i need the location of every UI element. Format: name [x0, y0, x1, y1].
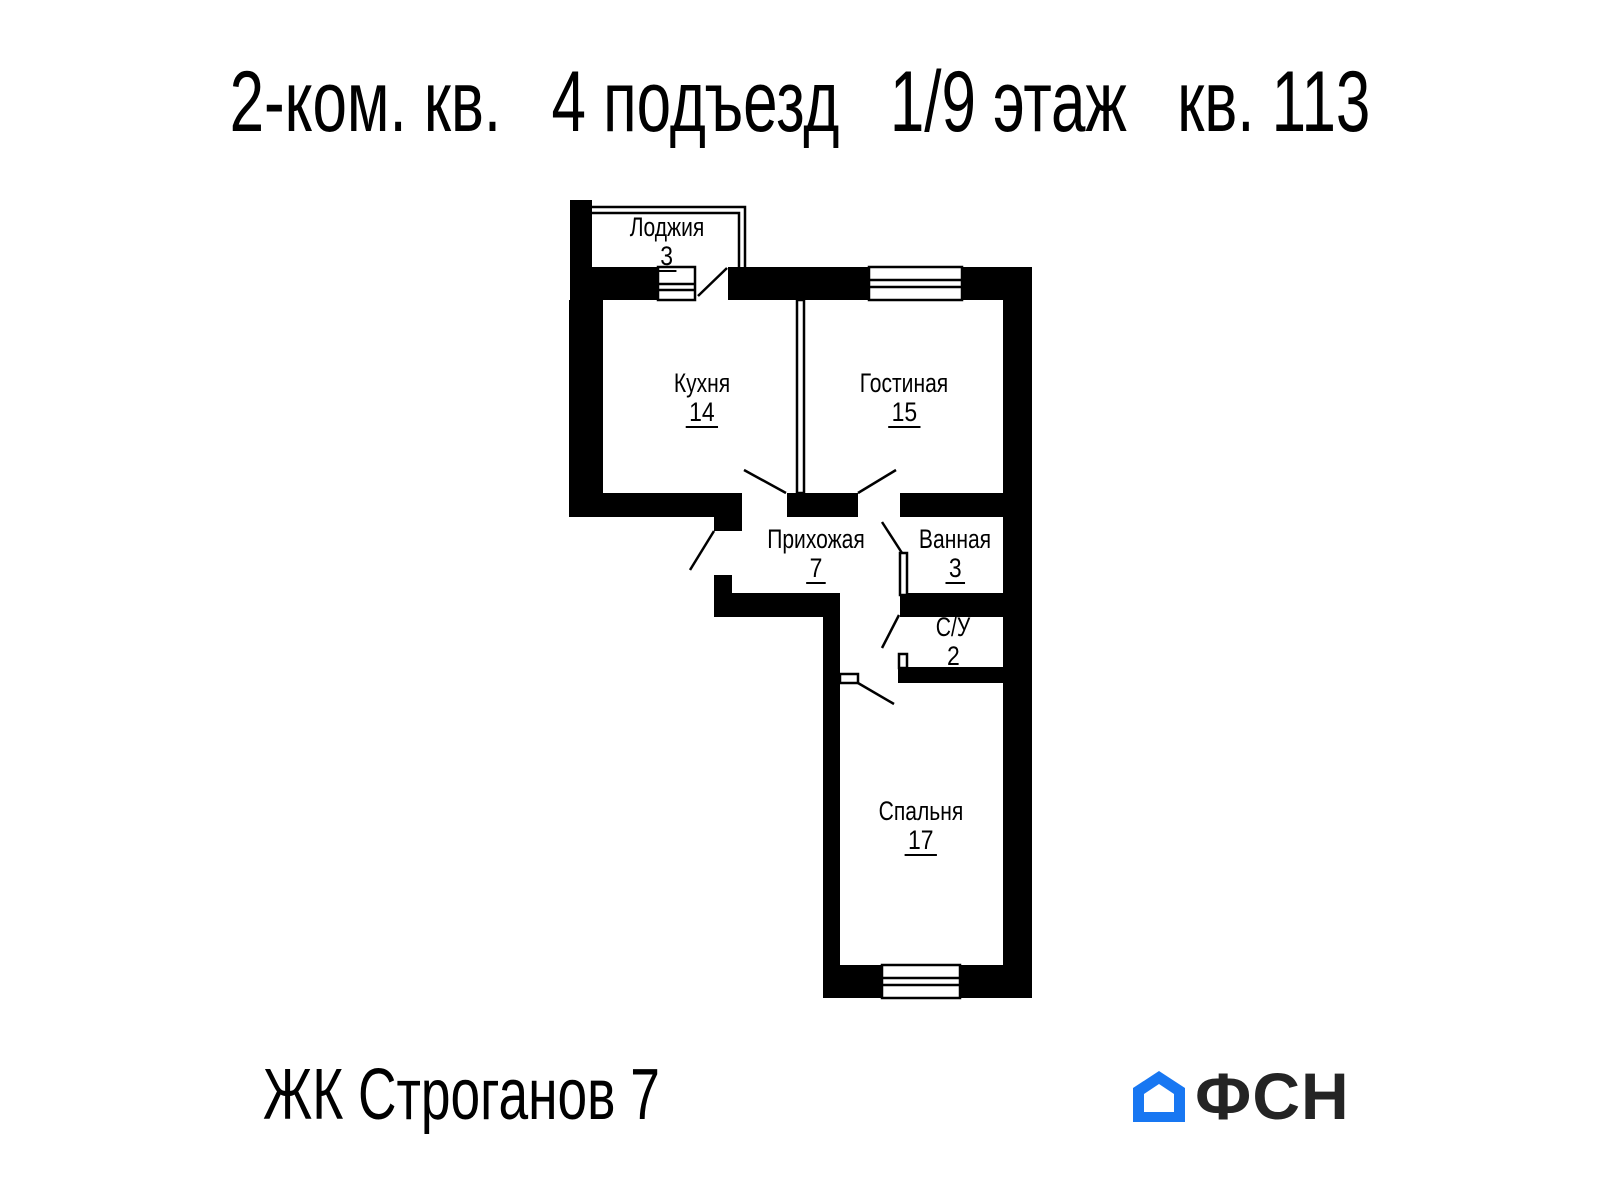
partition-kitchen-living [797, 300, 804, 493]
room-label-wc: С/У 2 [931, 612, 975, 676]
house-icon [1133, 1071, 1185, 1122]
bedroom-door-leaf [840, 674, 858, 683]
bedroom-window [882, 965, 960, 998]
living-room-window [869, 267, 962, 300]
room-name: Спальня [879, 796, 964, 826]
kitchen-door-swing [744, 470, 786, 493]
room-label-bathroom: Ванная 3 [909, 524, 1001, 588]
logo-text: ФСН [1195, 1066, 1350, 1126]
room-label-living: Гостиная 15 [847, 368, 960, 432]
room-area: 2 [943, 642, 963, 672]
wall-kitchen-bottom [603, 493, 742, 517]
wall-top-middle [728, 267, 869, 300]
room-area: 17 [905, 826, 937, 856]
wall-entrance-jamb-top [714, 517, 742, 531]
room-area: 3 [657, 242, 677, 272]
wall-bedroom-bottom-right [960, 965, 1032, 998]
wall-hall-bottom [714, 593, 840, 617]
room-name: Лоджия [630, 212, 705, 242]
bathroom-door-leaf [900, 553, 907, 595]
room-label-loggia: Лоджия 3 [619, 212, 715, 276]
wall-top-right [962, 267, 1032, 300]
room-name: С/У [936, 612, 970, 642]
wall-left-upper [570, 200, 592, 300]
room-name: Ванная [919, 524, 991, 554]
room-area: 3 [945, 554, 965, 584]
living-door-swing [858, 470, 896, 493]
floorplan-page: { "title": { "parts": ["2-ком. кв.", "4 … [0, 0, 1600, 1200]
entrance-door-swing [690, 531, 714, 570]
room-label-hallway: Прихожая 7 [753, 524, 878, 588]
bathroom-door-swing [882, 522, 902, 553]
bedroom-door-swing [858, 683, 894, 704]
room-area: 14 [686, 398, 718, 428]
room-area: 15 [888, 398, 920, 428]
room-name: Прихожая [767, 524, 865, 554]
wall-left [569, 300, 603, 517]
wall-right [1003, 300, 1032, 998]
floorplan-drawing [0, 0, 1600, 1200]
residential-complex-name: ЖК Строганов 7 [263, 1056, 660, 1134]
wc-door-swing [882, 615, 899, 648]
wc-door-leaf [899, 654, 907, 668]
wall-bathroom-top [900, 493, 1003, 517]
wall-bedroom-bottom-left [823, 965, 882, 998]
room-area: 7 [806, 554, 826, 584]
room-name: Гостиная [860, 368, 948, 398]
wall-bedroom-left [823, 617, 840, 998]
room-label-kitchen: Кухня 14 [666, 368, 738, 432]
room-label-bedroom: Спальня 17 [867, 796, 976, 860]
wall-hall-top [787, 493, 858, 517]
room-name: Кухня [674, 368, 730, 398]
developer-logo: ФСН [1133, 1066, 1350, 1126]
